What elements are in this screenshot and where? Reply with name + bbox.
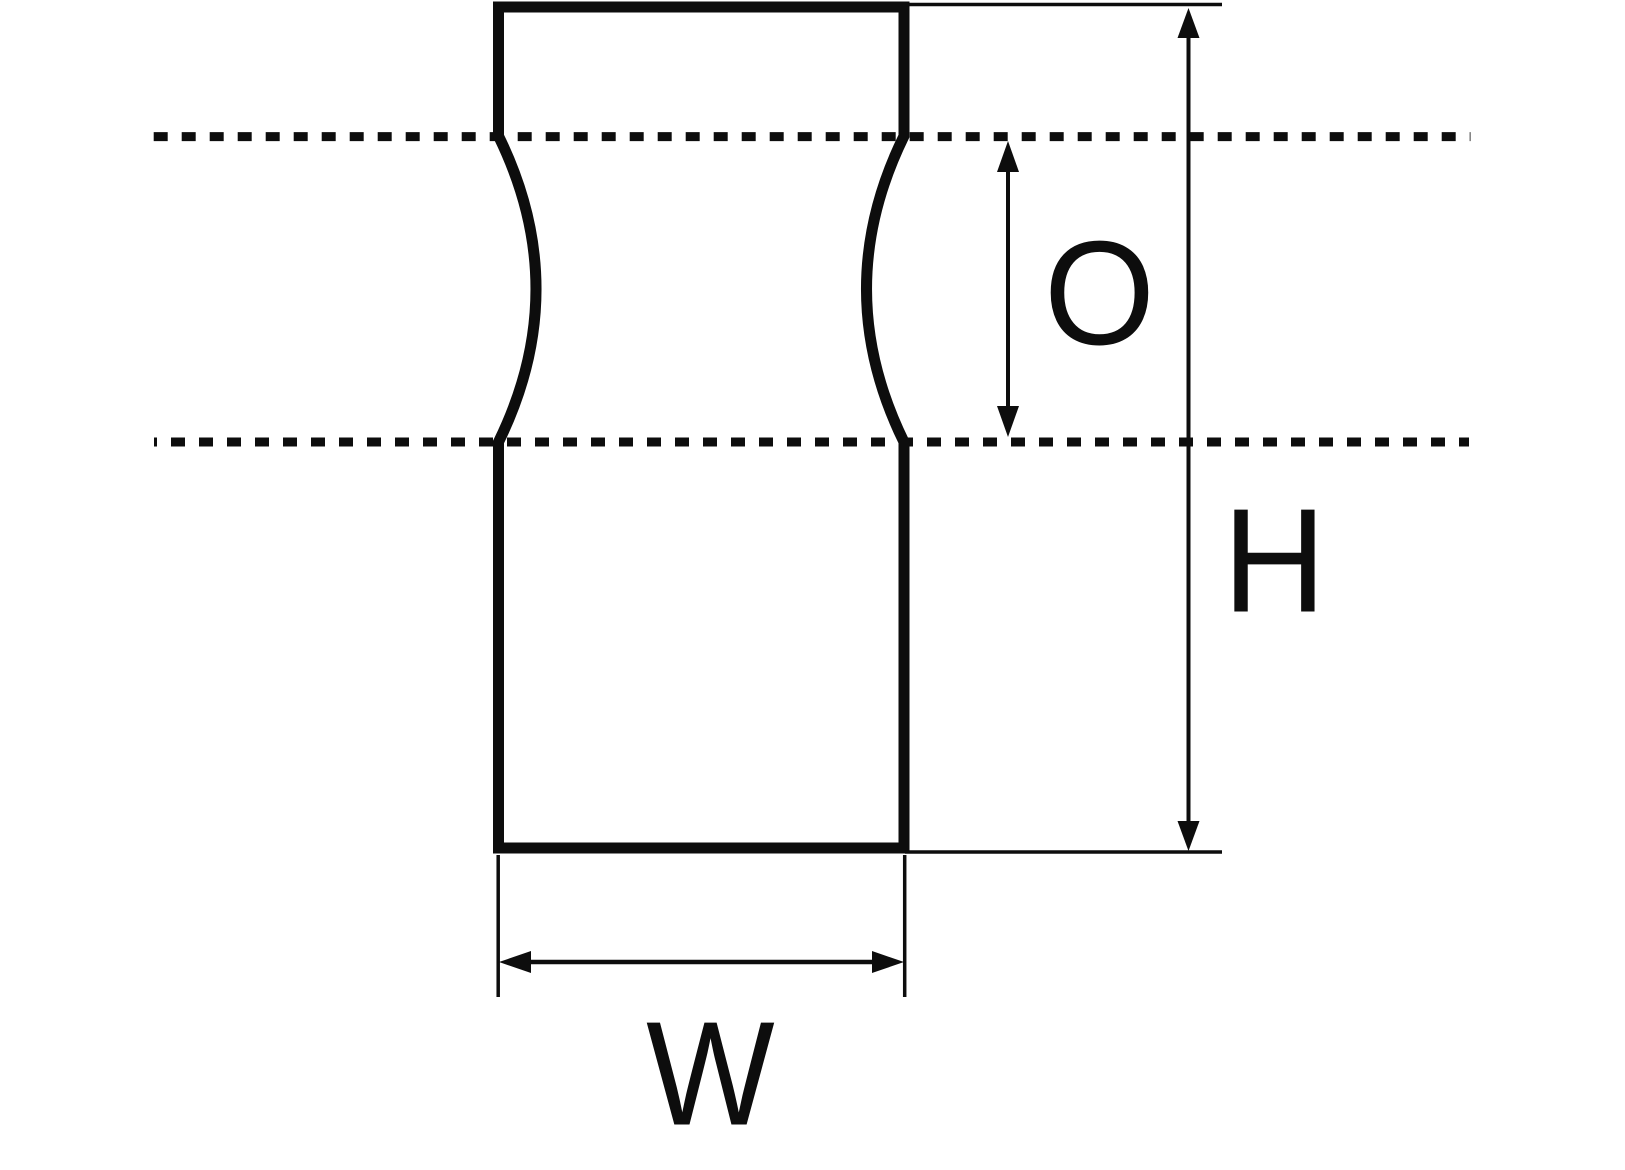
svg-text:O: O [1044,210,1155,376]
svg-text:W: W [646,991,775,1156]
svg-text:H: H [1223,478,1327,643]
